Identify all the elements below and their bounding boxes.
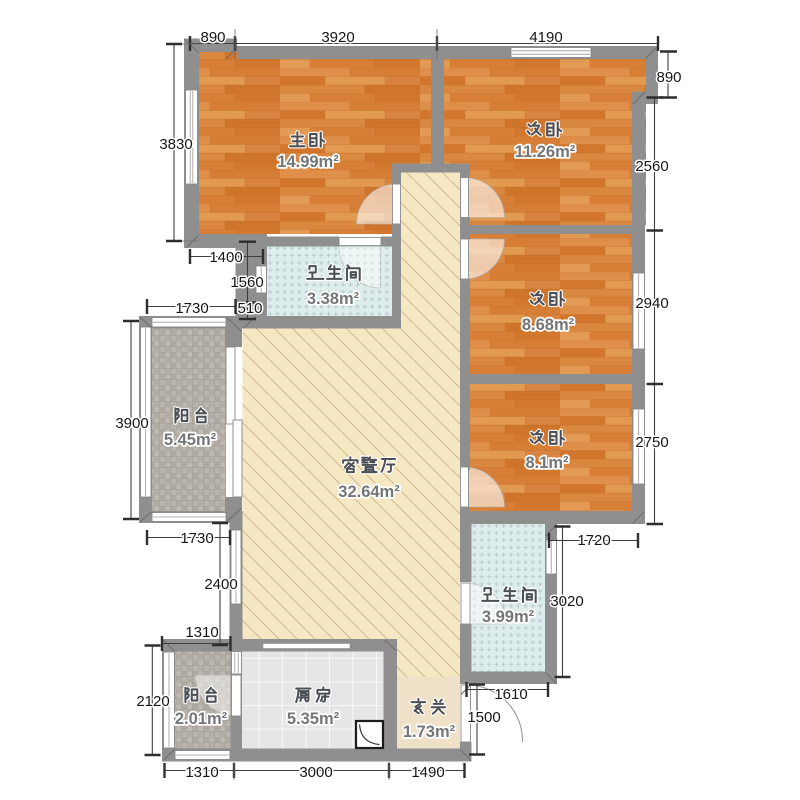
svg-text:510: 510 [237, 300, 262, 317]
svg-text:2750: 2750 [635, 434, 668, 451]
svg-text:1730: 1730 [180, 530, 213, 547]
svg-text:3920: 3920 [321, 29, 354, 46]
svg-text:2120: 2120 [136, 693, 169, 710]
svg-text:1.73m²: 1.73m² [403, 723, 456, 741]
svg-text:4190: 4190 [529, 29, 562, 46]
svg-text:1500: 1500 [467, 709, 500, 726]
svg-text:890: 890 [656, 69, 681, 86]
svg-text:3.38m²: 3.38m² [307, 290, 360, 308]
svg-text:11.26m²: 11.26m² [515, 143, 576, 161]
svg-text:2.01m²: 2.01m² [175, 710, 228, 728]
svg-text:14.99m²: 14.99m² [277, 153, 339, 171]
svg-text:3.99m²: 3.99m² [482, 608, 535, 626]
svg-text:1400: 1400 [209, 249, 242, 266]
svg-text:32.64m²: 32.64m² [338, 483, 400, 501]
svg-text:3900: 3900 [115, 415, 148, 432]
svg-text:1610: 1610 [494, 686, 527, 703]
svg-text:5.45m²: 5.45m² [164, 431, 217, 449]
svg-text:1720: 1720 [577, 532, 610, 549]
svg-text:5.35m²: 5.35m² [287, 710, 340, 728]
svg-text:2560: 2560 [635, 158, 668, 175]
svg-text:3020: 3020 [550, 593, 583, 610]
svg-text:2400: 2400 [204, 576, 237, 593]
svg-text:2940: 2940 [635, 295, 668, 312]
svg-text:1560: 1560 [230, 274, 263, 291]
svg-text:8.1m²: 8.1m² [525, 454, 569, 472]
svg-text:1310: 1310 [185, 764, 218, 781]
svg-text:1730: 1730 [175, 300, 208, 317]
svg-text:890: 890 [200, 29, 225, 46]
svg-text:3000: 3000 [299, 764, 332, 781]
svg-text:1310: 1310 [185, 624, 218, 641]
svg-text:1490: 1490 [411, 764, 444, 781]
svg-text:8.68m²: 8.68m² [522, 316, 575, 334]
svg-text:3830: 3830 [159, 136, 192, 153]
